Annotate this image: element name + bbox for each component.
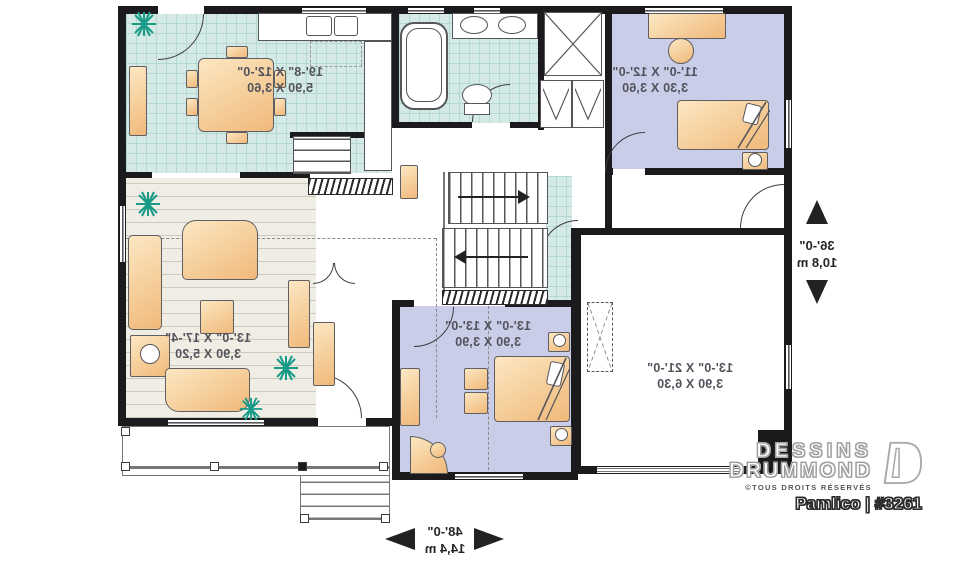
window	[786, 345, 791, 389]
door-opening	[158, 6, 204, 14]
tv-unit	[288, 280, 310, 348]
chair	[186, 98, 198, 116]
door-opening	[318, 418, 366, 426]
window	[455, 474, 523, 479]
dining-metric: 5,90 X 3,60	[222, 80, 338, 96]
garage-post	[587, 302, 613, 372]
master-metric: 3,30 X 3,60	[598, 80, 712, 96]
arrow-right-icon	[518, 190, 530, 204]
wall	[605, 173, 612, 228]
porch-post	[298, 462, 307, 471]
lamp	[748, 153, 762, 167]
coffee-table	[200, 300, 234, 334]
closet	[540, 80, 572, 128]
wall	[392, 6, 399, 128]
master-imperial: 11'-0" X 12'-0"	[598, 64, 712, 80]
chest	[464, 392, 488, 414]
railing	[308, 178, 393, 195]
porch-post	[381, 514, 390, 523]
garage-imperial: 13'-0" X 21'-0"	[632, 360, 748, 376]
brand-name-line2: DRUMMOND	[640, 459, 872, 483]
railing	[442, 290, 548, 305]
living-metric: 3,90 X 5,20	[150, 346, 266, 362]
width-dimension: 48'-0" 14,4 m	[418, 524, 472, 558]
plant-icon	[130, 10, 158, 38]
rights-notice: ©TOUS DROITS RÉSERVÉS	[640, 483, 872, 492]
porch-post	[210, 462, 219, 471]
dining-room-label: 19'-8" X 12'-0" 5,90 X 3,60	[222, 64, 338, 97]
sideboard	[129, 66, 147, 136]
wall	[118, 172, 152, 178]
sofa	[182, 220, 258, 280]
kitchen-sink	[334, 16, 358, 36]
bedroom-metric: 3,90 X 3,90	[430, 334, 546, 350]
bathtub-inner	[406, 28, 442, 102]
wall	[571, 228, 581, 473]
porch-steps	[300, 476, 390, 520]
window	[408, 8, 444, 13]
depth-metric: 10,8 m	[788, 255, 846, 272]
stair-arrow	[466, 256, 528, 258]
stairs-up	[448, 172, 548, 224]
dresser	[400, 368, 420, 426]
desk	[648, 13, 726, 39]
chest	[464, 368, 488, 390]
plant-icon	[238, 396, 264, 422]
plan-title: Pamlico | #3261	[700, 494, 922, 514]
arrow-left-icon	[454, 250, 466, 264]
floor-plan: 19'-8" X 12'-0" 5,90 X 3,60 11'-0" X 12'…	[0, 0, 960, 569]
double-door-arc	[313, 263, 334, 284]
double-door-arc	[334, 263, 355, 284]
arrow-up-icon	[806, 200, 828, 224]
living-imperial: 13'-0" X 17'-4"	[150, 330, 266, 346]
garage-metric: 3,90 X 6,30	[632, 376, 748, 392]
bed-fold	[736, 100, 770, 150]
porch-post	[121, 427, 130, 436]
stair-arrow	[458, 196, 520, 198]
desk-chair	[430, 442, 446, 458]
door-arc	[740, 184, 784, 228]
lamp	[553, 334, 566, 347]
porch-post	[379, 462, 388, 471]
lamp	[555, 428, 568, 441]
arrow-down-icon	[806, 280, 828, 304]
plant-icon	[134, 190, 162, 218]
porch-post	[121, 462, 130, 471]
cabinet	[313, 322, 335, 386]
chair	[226, 46, 248, 58]
chair	[186, 70, 198, 88]
chair	[274, 98, 286, 116]
porch-railing	[122, 466, 390, 469]
depth-imperial: 36'-0"	[788, 238, 846, 255]
basement-stairs	[293, 136, 351, 174]
wall	[392, 300, 414, 307]
dining-imperial: 19'-8" X 12'-0"	[222, 64, 338, 80]
wall	[392, 122, 472, 128]
bedroom-imperial: 13'-0" X 13'-0"	[430, 318, 546, 334]
window	[786, 100, 791, 148]
width-metric: 14,4 m	[418, 541, 472, 558]
width-imperial: 48'-0"	[418, 524, 472, 541]
arrow-left-icon	[385, 528, 415, 550]
sink	[498, 16, 526, 34]
cabinet	[400, 165, 418, 199]
wall	[578, 228, 792, 235]
kitchen-counter	[364, 41, 392, 171]
living-room-label: 13'-0" X 17'-4" 3,90 X 5,20	[150, 330, 266, 363]
toilet-tank	[464, 103, 490, 115]
bed-fold	[536, 356, 570, 422]
drummond-logo-icon	[878, 438, 924, 490]
bedroom-label: 13'-0" X 13'-0" 3,90 X 3,90	[430, 318, 546, 351]
depth-dimension: 36'-0" 10,8 m	[788, 238, 846, 272]
window	[120, 206, 125, 262]
kitchen-sink	[306, 16, 332, 36]
wall	[645, 168, 792, 175]
loveseat	[128, 235, 162, 330]
shower	[544, 12, 602, 76]
dashed-line	[126, 238, 436, 239]
plant-icon	[272, 354, 300, 382]
arrow-right-icon	[474, 528, 504, 550]
sink	[460, 16, 488, 34]
master-bedroom-label: 11'-0" X 12'-0" 3,30 X 3,60	[598, 64, 712, 97]
desk-chair	[668, 38, 694, 64]
chair	[226, 132, 248, 144]
porch-post	[300, 514, 309, 523]
garage-label: 13'-0" X 21'-0" 3,90 X 6,30	[632, 360, 748, 393]
wall	[392, 300, 400, 480]
